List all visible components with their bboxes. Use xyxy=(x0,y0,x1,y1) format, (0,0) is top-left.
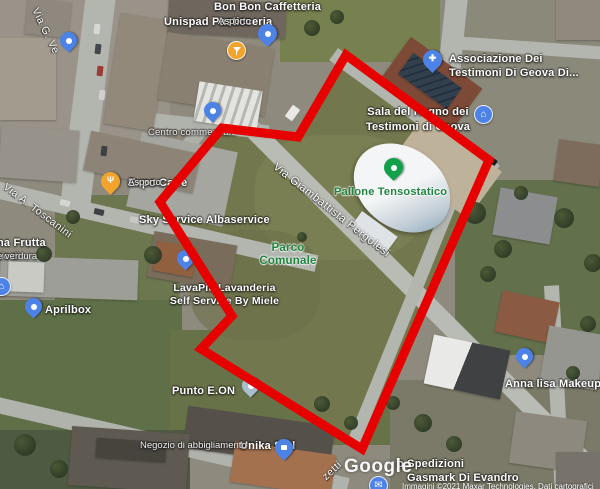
restaurant-icon: Ψ xyxy=(101,173,120,192)
car xyxy=(98,90,105,101)
poi-label-lavapiu[interactable]: LavaPiù LavanderiaSelf Service By Miele xyxy=(152,282,297,308)
poi-line1: LavaPiù Lavanderia xyxy=(152,282,297,295)
tree xyxy=(304,20,320,36)
associazione-church-pin[interactable]: ✚ xyxy=(423,50,442,69)
poi-label-punto-eon[interactable]: Punto E.ON xyxy=(172,385,235,397)
poi-line1: Parco xyxy=(246,242,330,255)
poi-sub: Negozio di abbigliamento xyxy=(140,440,247,451)
tree xyxy=(580,316,596,332)
poi-label-associazione[interactable]: Associazione DeiTestimoni Di Geova Di... xyxy=(449,52,579,80)
google-watermark: Google xyxy=(344,456,412,478)
poi-label-sky-service[interactable]: Sky Service Albaservice xyxy=(139,214,270,226)
tree xyxy=(386,396,400,410)
building-icon: ⌂ xyxy=(475,106,492,123)
poi-line1: Associazione Dei xyxy=(449,52,579,66)
poi-label-pallone[interactable]: Pallone Tensostatico xyxy=(334,186,447,198)
punto-eon-pin[interactable] xyxy=(242,377,259,394)
aprilbox-pin[interactable] xyxy=(25,298,42,315)
tree xyxy=(464,202,486,224)
tree xyxy=(514,186,528,200)
pin-dot-icon xyxy=(522,354,528,360)
satellite-map[interactable]: Via G. Ve Via A. Toscanini Via Giambatti… xyxy=(0,0,600,489)
tree xyxy=(14,434,36,456)
mail-icon: ✉ xyxy=(370,477,387,489)
poi-label-parco[interactable]: ParcoComunale xyxy=(246,242,330,268)
sala-regno-building-badge[interactable]: ⌂ xyxy=(474,105,493,124)
centro-pin[interactable] xyxy=(204,102,221,119)
unika-shop-pin[interactable] xyxy=(275,439,293,457)
shop-icon: ⌂ xyxy=(0,278,10,295)
car xyxy=(94,44,101,55)
poi-line2: Testimoni di Geova xyxy=(356,120,480,135)
tree xyxy=(446,436,462,452)
tree xyxy=(330,10,344,24)
building xyxy=(0,125,80,182)
pin-dot-icon xyxy=(210,108,216,114)
tree xyxy=(554,208,574,228)
car xyxy=(100,146,107,157)
pin-dot-icon xyxy=(265,31,271,37)
cocktail-icon xyxy=(233,47,241,52)
car xyxy=(96,66,103,77)
anna-lisa-pin[interactable] xyxy=(516,348,533,365)
poi-line1: na Frutta xyxy=(0,237,46,250)
tree xyxy=(414,414,432,432)
pin-dot-icon xyxy=(66,38,72,44)
bonbon-cocktail-badge[interactable] xyxy=(227,41,246,60)
bag-icon xyxy=(281,445,287,450)
frutta-badge[interactable]: ⌂ xyxy=(0,277,11,296)
car xyxy=(93,24,100,35)
tree xyxy=(344,416,358,430)
tree xyxy=(50,460,68,478)
pin-dot-icon xyxy=(248,383,254,389)
pallone-green-pin[interactable] xyxy=(384,158,403,177)
tree xyxy=(584,254,600,272)
poi-label-sala-regno[interactable]: Sala del Regno deiTestimoni di Geova xyxy=(356,105,480,134)
tree xyxy=(66,210,80,224)
copyright-text: Immagini ©2021 Maxar Technologies, Dati … xyxy=(402,482,600,489)
poi-line2: Testimoni Di Geova Di... xyxy=(449,66,579,80)
poi-label-anna-frutta[interactable]: na Fruttazio die verdura xyxy=(0,237,46,250)
tree xyxy=(144,246,162,264)
building xyxy=(7,261,44,292)
cross-icon: ✚ xyxy=(423,51,442,70)
poi-sub: Asporto xyxy=(218,16,251,27)
pin-dot-icon xyxy=(391,165,397,171)
poi-label-anna-lisa[interactable]: Anna lisa Makeup xyxy=(505,378,600,390)
lavapiu-pin[interactable] xyxy=(177,250,194,267)
poi-line1: Sala del Regno dei xyxy=(356,105,480,120)
tree xyxy=(297,232,307,242)
pin-dot-icon xyxy=(183,256,189,262)
expo-restaurant-pin[interactable]: Ψ xyxy=(101,172,120,191)
tree xyxy=(480,266,496,282)
poi-label-aprilbox[interactable]: Aprilbox xyxy=(45,304,91,316)
building xyxy=(556,0,600,40)
building xyxy=(553,139,600,187)
topleft-pin[interactable] xyxy=(60,32,77,49)
poi-label-centro[interactable]: Centro commerciale xyxy=(148,127,237,138)
cocktail-stem-icon xyxy=(236,51,237,55)
tree xyxy=(314,396,330,412)
poi-sub: Asporto xyxy=(128,177,161,188)
poi-line2: Self Service By Miele xyxy=(152,295,297,308)
unispad-pin[interactable] xyxy=(258,24,277,43)
poi-line3: e verdura xyxy=(0,250,37,263)
tree xyxy=(494,240,512,258)
poi-label-bon-bon[interactable]: Bon Bon Caffetteria xyxy=(214,1,321,13)
pin-dot-icon xyxy=(31,304,37,310)
poi-line2: Comunale xyxy=(246,255,330,268)
